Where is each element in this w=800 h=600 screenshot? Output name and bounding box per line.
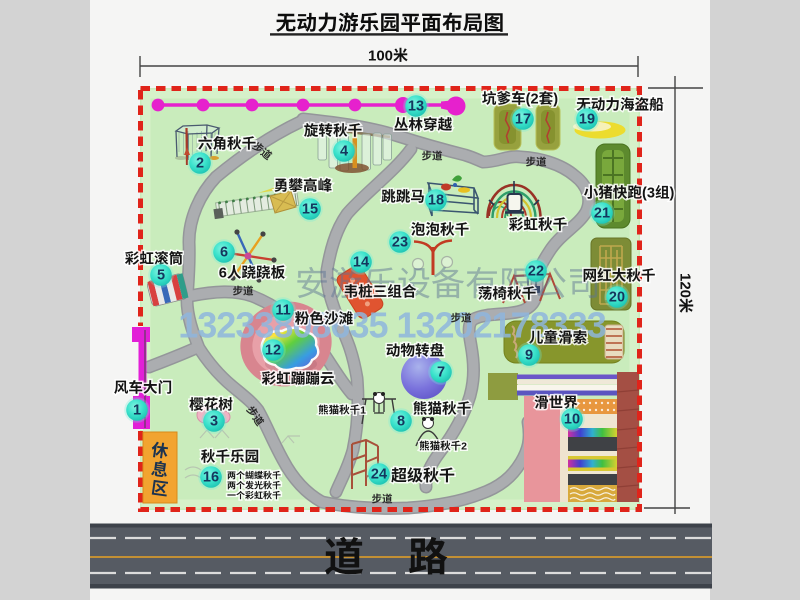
svg-text:旋转秋千: 旋转秋千 <box>304 120 362 141</box>
svg-text:熊猫秋千2: 熊猫秋千2 <box>419 439 467 454</box>
svg-text:100米: 100米 <box>368 45 408 66</box>
svg-text:2: 2 <box>196 156 204 172</box>
svg-text:20: 20 <box>609 290 625 306</box>
svg-text:一个彩虹秋千: 一个彩虹秋千 <box>227 489 281 502</box>
svg-text:无动力游乐园平面布局图: 无动力游乐园平面布局图 <box>276 6 505 36</box>
svg-text:风车大门: 风车大门 <box>114 377 172 398</box>
svg-text:12: 12 <box>265 343 281 359</box>
svg-text:11: 11 <box>275 303 290 319</box>
svg-text:韦桩三组合: 韦桩三组合 <box>344 281 417 302</box>
svg-text:7: 7 <box>437 365 445 381</box>
svg-text:15: 15 <box>302 202 318 218</box>
svg-text:彩虹蹦蹦云: 彩虹蹦蹦云 <box>262 368 335 389</box>
svg-text:22: 22 <box>528 264 544 280</box>
svg-text:1: 1 <box>133 403 141 419</box>
svg-text:安游乐设备有限公司: 安游乐设备有限公司 <box>295 257 601 306</box>
svg-text:超级秋千: 超级秋千 <box>391 462 455 486</box>
svg-text:荡椅秋千: 荡椅秋千 <box>478 283 536 304</box>
svg-text:21: 21 <box>594 206 610 222</box>
svg-text:步道: 步道 <box>526 155 547 170</box>
svg-text:坑爹车(2套): 坑爹车(2套) <box>482 88 558 109</box>
svg-text:跳跳马: 跳跳马 <box>381 186 425 207</box>
svg-text:勇攀高峰: 勇攀高峰 <box>274 175 333 196</box>
svg-text:9: 9 <box>525 348 533 364</box>
svg-text:熊猫秋千: 熊猫秋千 <box>413 398 471 419</box>
svg-text:粉色沙滩: 粉色沙滩 <box>295 308 354 329</box>
svg-text:6: 6 <box>220 245 228 261</box>
svg-text:网红大秋千: 网红大秋千 <box>583 265 656 286</box>
svg-text:18: 18 <box>428 193 444 209</box>
svg-text:六角秋千: 六角秋千 <box>198 133 256 154</box>
svg-text:步道: 步道 <box>451 311 472 326</box>
svg-text:8: 8 <box>397 414 405 430</box>
svg-text:4: 4 <box>340 144 348 160</box>
svg-text:17: 17 <box>515 112 531 128</box>
svg-text:14: 14 <box>353 255 369 271</box>
svg-text:步道: 步道 <box>233 284 254 299</box>
svg-text:5: 5 <box>157 268 165 284</box>
svg-text:秋千乐园: 秋千乐园 <box>201 446 259 467</box>
svg-text:23: 23 <box>392 235 408 251</box>
svg-text:小猪快跑(3组): 小猪快跑(3组) <box>584 182 675 203</box>
svg-text:6人跷跷板: 6人跷跷板 <box>219 262 286 283</box>
svg-text:10: 10 <box>564 412 580 428</box>
svg-text:120米: 120米 <box>676 273 697 313</box>
svg-text:泡泡秋千: 泡泡秋千 <box>411 219 469 240</box>
svg-text:丛林穿越: 丛林穿越 <box>394 114 453 135</box>
svg-text:步道: 步道 <box>422 149 443 164</box>
svg-text:16: 16 <box>203 470 219 486</box>
svg-text:19: 19 <box>579 112 595 128</box>
svg-text:3: 3 <box>210 414 218 430</box>
svg-text:步道: 步道 <box>372 492 393 507</box>
svg-text:彩虹秋千: 彩虹秋千 <box>509 214 567 235</box>
svg-text:13: 13 <box>408 99 424 115</box>
svg-text:24: 24 <box>371 467 387 483</box>
svg-text:区: 区 <box>150 473 170 500</box>
svg-text:道: 道 <box>324 525 364 583</box>
svg-text:动物转盘: 动物转盘 <box>386 340 445 361</box>
svg-text:路: 路 <box>408 525 448 583</box>
svg-text:儿童滑索: 儿童滑索 <box>529 327 587 348</box>
svg-text:熊猫秋千1: 熊猫秋千1 <box>318 403 366 418</box>
